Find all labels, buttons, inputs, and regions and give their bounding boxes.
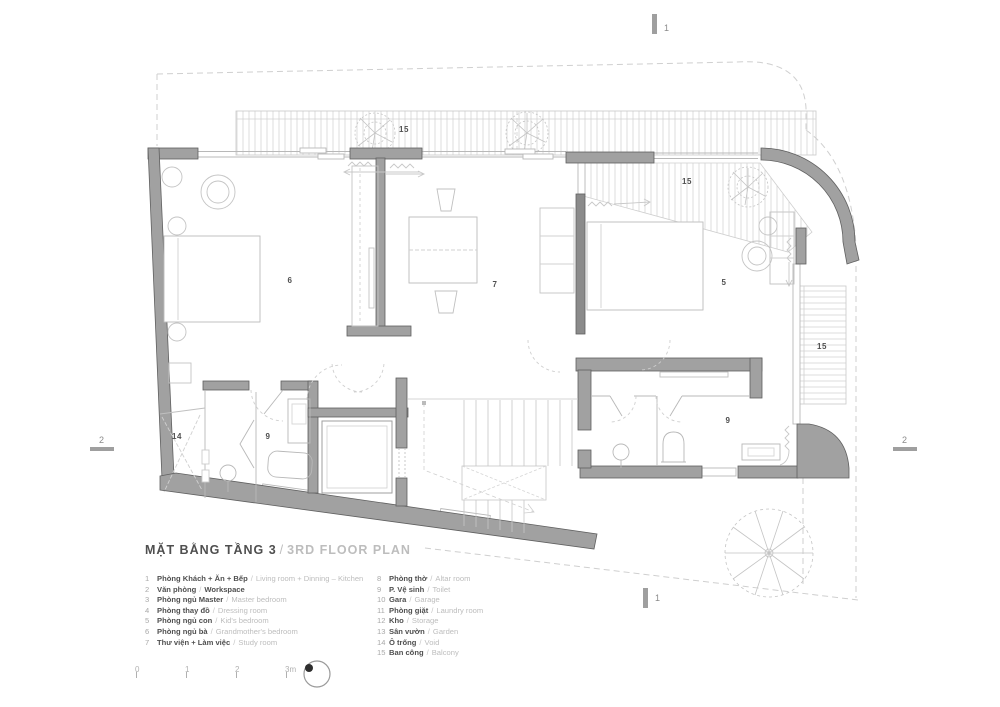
vanity-icon [288,399,310,443]
legend-item: 9P. Vệ sinh/Toilet [377,585,483,596]
legend-column-1: 1Phòng Khách + Ăn + Bếp/Living room + Di… [145,574,363,648]
title-english: 3RD FLOOR PLAN [287,543,411,557]
bathtub-icon [267,450,313,479]
legend-item: 3Phòng ngủ Master/Master bedroom [145,595,363,606]
room-label-void: 14 [172,432,182,441]
legend-item: 13Sân vườn/Garden [377,627,483,638]
curtain-icon [348,162,372,166]
room-label-balcony: 15 [682,177,692,186]
section-marker-label: 1 [664,23,669,33]
section-marker-label: 1 [655,593,660,603]
legend-item: 6Phòng ngủ bà/Grandmother's bedroom [145,627,363,638]
shelf [660,372,728,377]
armchair [201,175,235,209]
scale-tick [286,672,287,678]
scale-mark: 3m [285,659,296,677]
armchair [742,241,772,271]
legend-item: 4Phòng thay đồ/Dressing room [145,606,363,617]
room-label-study: 7 [493,280,498,289]
scale-tick [236,672,237,678]
page-title: MẶT BẰNG TẦNG 3/3RD FLOOR PLAN [145,543,411,557]
room-label-grandmother-bedroom: 6 [288,276,293,285]
legend-item: 2Văn phòng/Workspace [145,585,363,596]
large-tree-icon [725,509,813,597]
curved-corner-wall [797,424,849,478]
scale-mark: 1 [185,659,189,677]
sliding-window-icon [505,149,535,154]
door-swing [610,396,636,422]
room-label-balcony: 15 [817,342,827,351]
curtain-icon [785,426,789,450]
room-label-toilet: 9 [726,416,731,425]
legend-column-2: 8Phòng thờ/Altar room 9P. Vệ sinh/Toilet… [377,574,483,659]
room-label-balcony: 15 [399,125,409,134]
title-separator: / [280,543,284,557]
elevator [322,421,405,493]
room-label-kids-bedroom: 5 [722,278,727,287]
bifold-door-icon [240,420,254,468]
scale-bar: 0 1 2 3m [135,659,345,683]
legend-item: 14Ô trống/Void [377,638,483,649]
section-marker-bar [90,447,114,451]
section-marker-bar [893,447,917,451]
section-marker-bar [643,588,648,608]
bed [587,222,703,310]
sliding-window-icon [300,148,326,153]
floor-plan-sheet: 1 1 2 2 15 15 15 6 7 5 14 9 9 MẶT BẰNG T… [0,0,1000,707]
section-marker-label: 2 [902,435,907,445]
legend-item: 8Phòng thờ/Altar room [377,574,483,585]
pouf [169,363,191,383]
sink-icon [220,465,236,481]
legend-item: 1Phòng Khách + Ăn + Bếp/Living room + Di… [145,574,363,585]
section-marker-label: 2 [99,435,104,445]
toilet-icon [663,432,684,462]
stair-start-marker [422,401,426,405]
chair [437,189,455,211]
legend-item: 15Ban công/Balcony [377,648,483,659]
title-block: MẶT BẰNG TẦNG 3/3RD FLOOR PLAN [145,543,411,557]
legend-item: 7Thư viện + Làm việc/Study room [145,638,363,649]
sink-icon [613,444,629,460]
scale-mark: 0 [135,659,139,677]
room-label-toilet: 9 [266,432,271,441]
scale-tick [136,672,137,678]
legend-item: 12Kho/Storage [377,616,483,627]
title-vietnamese: MẶT BẰNG TẦNG 3 [145,543,277,557]
scale-tick [186,672,187,678]
scale-mark: 2 [235,659,239,677]
chair [435,291,457,313]
curtain-icon [588,202,612,206]
door-swing [656,396,682,422]
legend-item: 5Phòng ngủ con/Kid's bedroom [145,616,363,627]
section-marker-bar [652,14,657,34]
bookshelf [540,208,574,293]
legend-item: 10Gara/Garage [377,595,483,606]
legend-item: 11Phòng giặt/Laundry room [377,606,483,617]
